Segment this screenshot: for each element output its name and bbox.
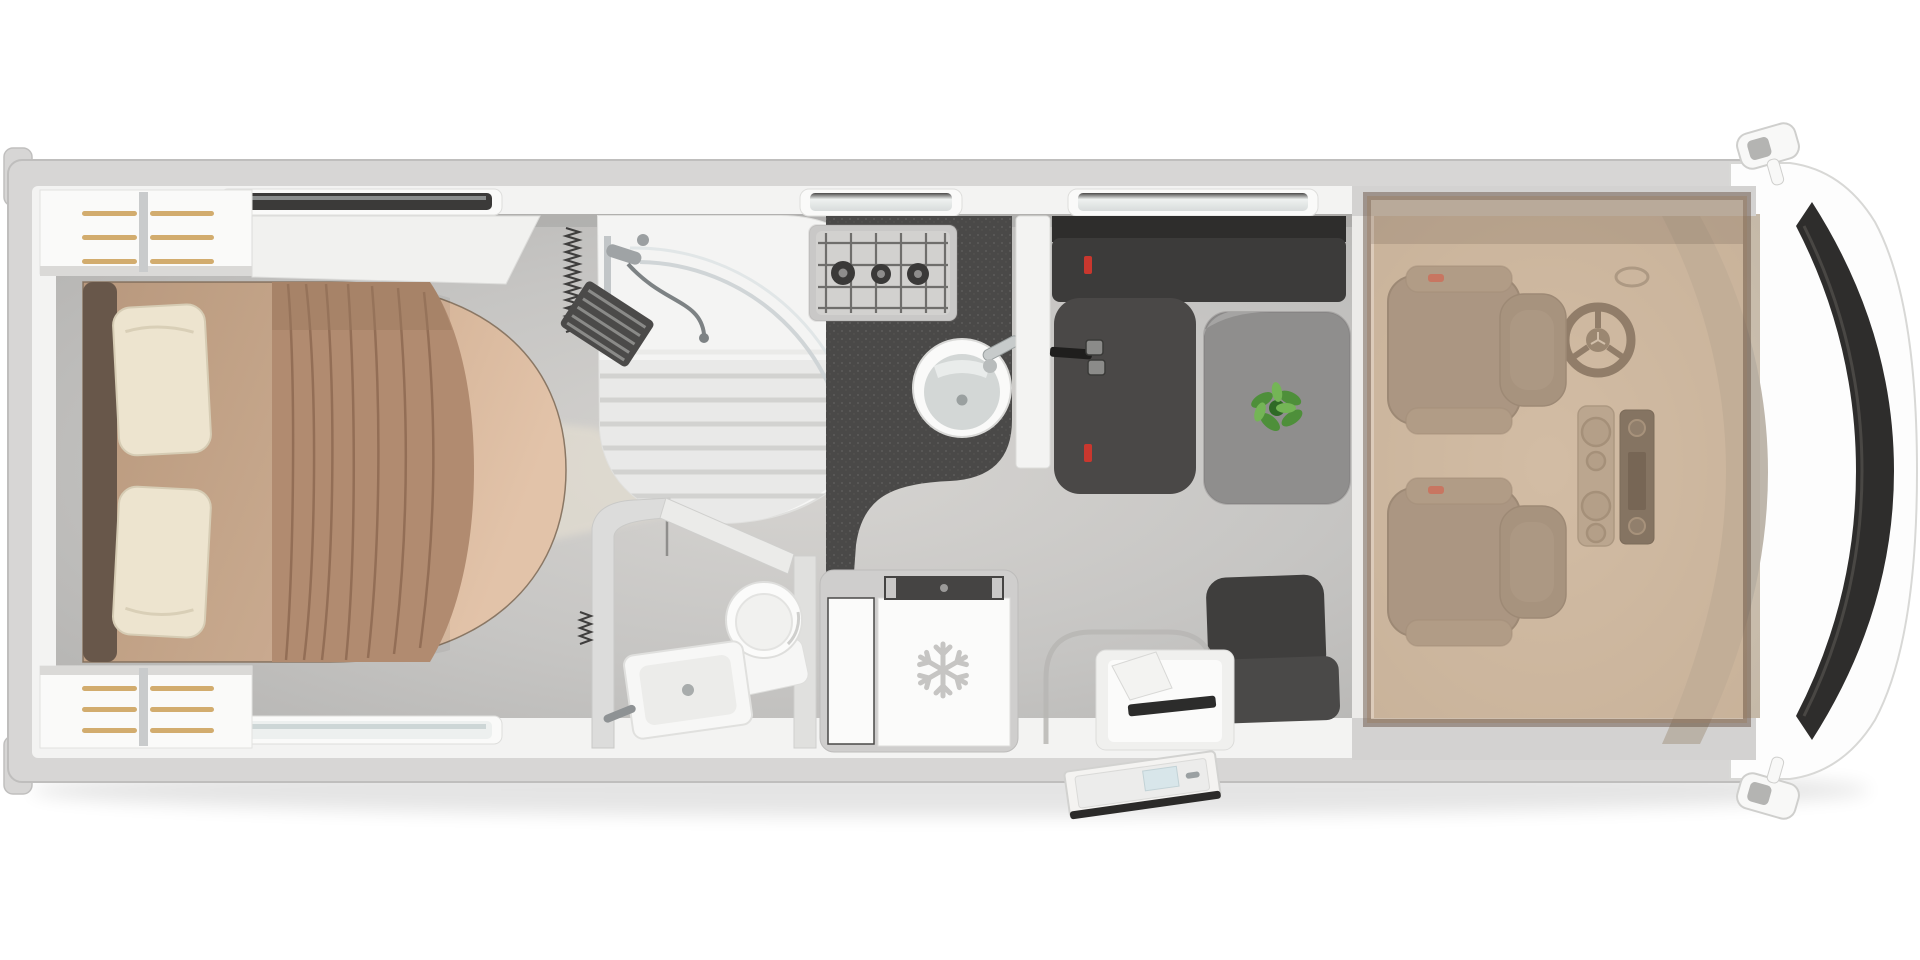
kitchen-skylight — [810, 193, 952, 211]
freezer-door — [828, 598, 874, 744]
bench-backrest — [1052, 238, 1346, 302]
gas-hob — [809, 225, 957, 321]
belt-clip-top — [1084, 256, 1092, 274]
wardrobe-bottom — [40, 666, 252, 748]
bed-drape — [272, 282, 474, 662]
overhead-locker — [252, 216, 540, 284]
dinette-window — [1078, 193, 1308, 211]
pillow-1 — [112, 304, 212, 457]
refrigerator — [820, 570, 1018, 752]
island-bed — [83, 282, 566, 662]
belt-clip-bottom — [1084, 444, 1092, 462]
bench-seat — [1054, 298, 1196, 494]
drop-down-bed-overlay — [1367, 196, 1747, 723]
kitchen-divider-wall — [1016, 216, 1050, 468]
bottom-window — [220, 716, 502, 744]
entry-step — [1096, 650, 1234, 750]
hob-burners — [831, 261, 929, 285]
motorhome-floorplan — [0, 0, 1920, 960]
pillow-2 — [112, 486, 212, 639]
floorplan-stage — [0, 0, 1920, 960]
wardrobe-top — [40, 190, 252, 276]
bedroom-window — [230, 193, 492, 210]
door-window — [1143, 766, 1179, 791]
